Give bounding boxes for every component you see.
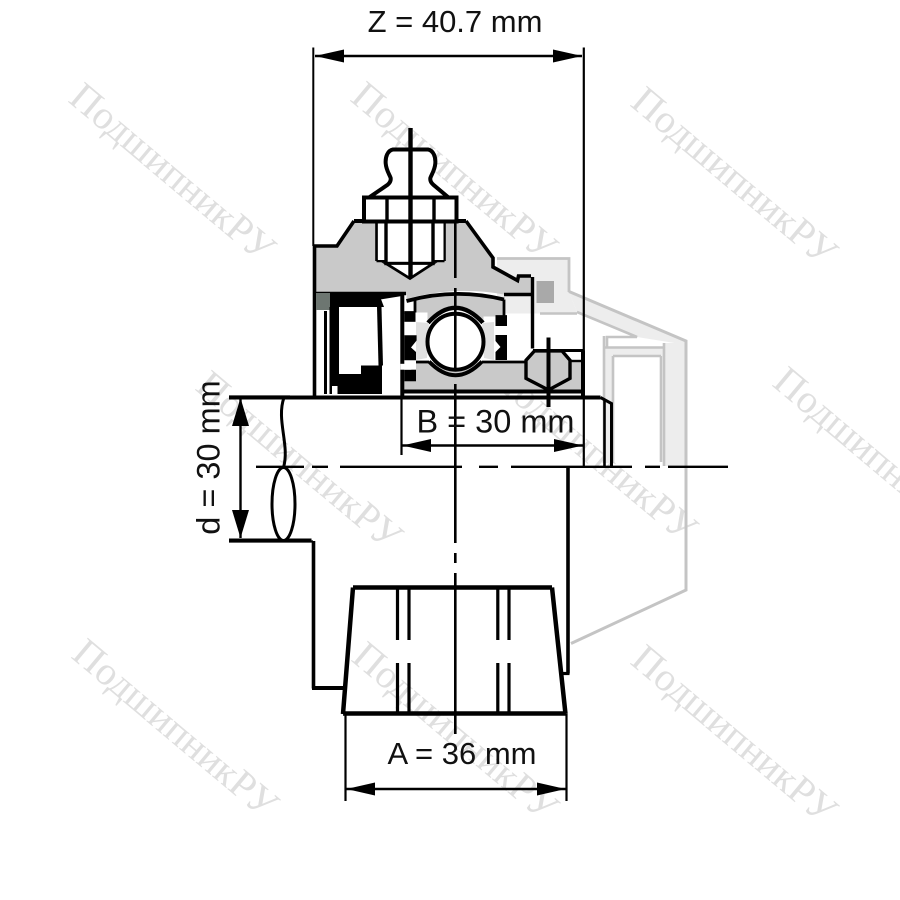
svg-text:B = 30 mm: B = 30 mm: [416, 404, 574, 440]
svg-text:d = 30 mm: d = 30 mm: [191, 380, 227, 534]
svg-text:A = 36 mm: A = 36 mm: [387, 736, 536, 771]
svg-text:Z = 40.7 mm: Z = 40.7 mm: [368, 4, 543, 39]
